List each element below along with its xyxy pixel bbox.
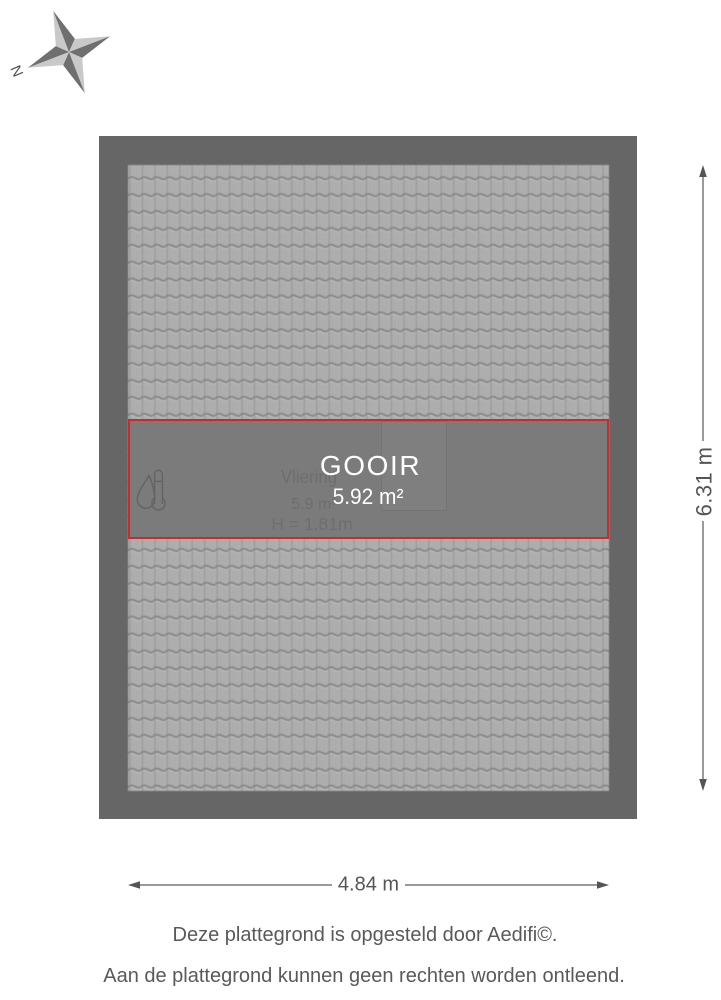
svg-text:6.31 m: 6.31 m — [692, 447, 717, 517]
svg-text:4.84 m: 4.84 m — [338, 874, 399, 896]
svg-text:N: N — [8, 62, 28, 79]
